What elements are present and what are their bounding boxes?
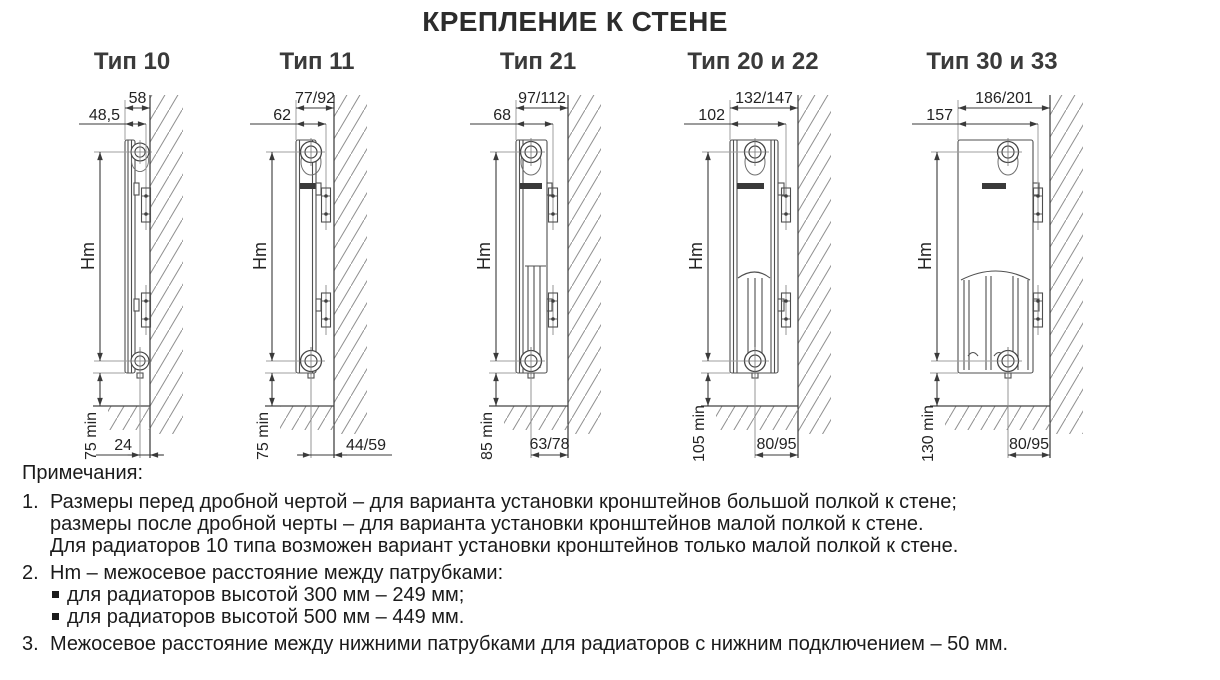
dim-floor-clearance: 105 min <box>691 373 708 462</box>
dim-pipe-wall-label: 80/95 <box>1009 436 1049 453</box>
dim-bracket-offset-label: 62 <box>273 107 291 124</box>
note-number: 1. <box>22 491 50 513</box>
figure-type-21-drawing: 97/112 68 Hm 85 min 63/78 <box>470 90 601 460</box>
note-line: Для радиаторов 10 типа возможен вариант … <box>50 535 1208 557</box>
figure-type-10-drawing: 58 48,5 Hm 75 min 24 <box>78 90 183 460</box>
note-bullet-text: для радиаторов высотой 500 мм – 449 мм. <box>67 606 464 628</box>
dim-bracket-offset: 48,5 <box>79 107 146 124</box>
dim-depth-total-label: 97/112 <box>518 90 566 107</box>
dim-bracket-offset-label: 68 <box>493 107 511 124</box>
brand-mark <box>520 183 542 189</box>
note-line: Hm – межосевое расстояние между патрубка… <box>50 562 1208 584</box>
dim-floor-clearance: 75 min <box>255 373 272 460</box>
dim-floor-min-label: 85 min <box>479 412 496 460</box>
dim-axis-label: Hm <box>250 242 270 270</box>
figure-type-20-22-drawing: 132/147 102 Hm 105 min 80/95 <box>684 90 831 462</box>
dim-axis-label: Hm <box>686 242 706 270</box>
notes-heading: Примечания: <box>22 462 1208 484</box>
dim-floor-min-label: 75 min <box>255 412 272 460</box>
dim-floor-min-label: 130 min <box>920 405 937 462</box>
dim-pipe-wall-offset: 80/95 <box>1008 436 1050 455</box>
dim-axis-height: Hm <box>250 152 272 361</box>
dim-pipe-wall-offset: 80/95 <box>755 436 798 455</box>
brand-mark <box>982 183 1006 189</box>
dim-axis-label: Hm <box>78 242 98 270</box>
dim-depth-total: 132/147 <box>730 90 798 108</box>
dim-depth-total-label: 58 <box>129 90 147 107</box>
dim-axis-label: Hm <box>915 242 935 270</box>
dim-pipe-wall-label: 80/95 <box>756 436 796 453</box>
note-number: 3. <box>22 633 50 655</box>
note-item-2: 2. Hm – межосевое расстояние между патру… <box>22 562 1208 628</box>
dim-bracket-offset-label: 48,5 <box>89 107 120 124</box>
dim-floor-min-label: 105 min <box>691 405 708 462</box>
dim-axis-height: Hm <box>78 152 100 361</box>
dim-bracket-offset-label: 102 <box>698 107 725 124</box>
dim-depth-total-label: 186/201 <box>975 90 1033 107</box>
dim-pipe-wall-label: 44/59 <box>346 437 386 454</box>
dim-axis-height: Hm <box>474 152 496 361</box>
dim-depth-total-label: 77/92 <box>295 90 335 107</box>
extension-lines <box>93 100 146 373</box>
note-item-3: 3. Межосевое расстояние между нижними па… <box>22 633 1208 655</box>
dim-floor-clearance: 85 min <box>479 373 496 460</box>
square-bullet-icon <box>52 591 59 598</box>
dim-bracket-offset: 68 <box>470 107 553 124</box>
note-item-1: 1. Размеры перед дробной чертой – для ва… <box>22 491 1208 557</box>
note-bullet-line: для радиаторов высотой 500 мм – 449 мм. <box>50 606 1208 628</box>
dim-axis-height: Hm <box>915 152 937 361</box>
dim-pipe-wall-offset: 63/78 <box>529 436 569 455</box>
wall-brackets <box>549 180 558 335</box>
dim-bracket-offset-label: 157 <box>926 107 953 124</box>
dim-depth-total: 58 <box>125 90 150 108</box>
dim-depth-total: 186/201 <box>958 90 1050 108</box>
mounting-diagrams: 58 48,5 Hm 75 min 24 <box>0 0 1220 470</box>
wall-brackets <box>782 180 791 335</box>
dim-floor-min-label: 75 min <box>83 412 100 460</box>
note-bullet-line: для радиаторов высотой 300 мм – 249 мм; <box>50 584 1208 606</box>
dim-pipe-wall-offset: 24 <box>96 437 164 455</box>
dim-depth-total: 97/112 <box>516 90 568 108</box>
dim-axis-height: Hm <box>686 152 708 361</box>
figure-type-11-drawing: 77/92 62 Hm 75 min 44/59 <box>250 90 392 460</box>
dim-axis-label: Hm <box>474 242 494 270</box>
note-line: Размеры перед дробной чертой – для вариа… <box>50 491 1208 513</box>
figure-type-30-33-drawing: 186/201 157 Hm 130 min 80/95 <box>912 90 1083 462</box>
brand-mark <box>737 183 764 189</box>
dim-depth-total-label: 132/147 <box>735 90 793 107</box>
dim-depth-total: 77/92 <box>295 90 335 108</box>
wall-brackets <box>142 180 151 335</box>
square-bullet-icon <box>52 613 59 620</box>
dim-floor-clearance: 75 min <box>83 373 100 460</box>
dim-pipe-wall-label: 63/78 <box>529 436 569 453</box>
wall-brackets <box>1034 180 1043 335</box>
note-number: 2. <box>22 562 50 584</box>
dim-bracket-offset: 157 <box>912 107 1038 124</box>
note-bullet-text: для радиаторов высотой 300 мм – 249 мм; <box>67 584 464 606</box>
note-line: размеры после дробной черты – для вариан… <box>50 513 1208 535</box>
note-line: Межосевое расстояние между нижними патру… <box>50 633 1208 655</box>
dim-bracket-offset: 102 <box>684 107 786 124</box>
dim-pipe-wall-label: 24 <box>114 437 132 454</box>
mounting-sheet: КРЕПЛЕНИЕ К СТЕНЕ Тип 10 Тип 11 Тип 21 Т… <box>0 0 1220 680</box>
dim-floor-clearance: 130 min <box>920 373 937 462</box>
dim-bracket-offset: 62 <box>250 107 326 124</box>
notes-section: Примечания: 1. Размеры перед дробной чер… <box>22 462 1208 655</box>
wall-brackets <box>322 180 331 335</box>
